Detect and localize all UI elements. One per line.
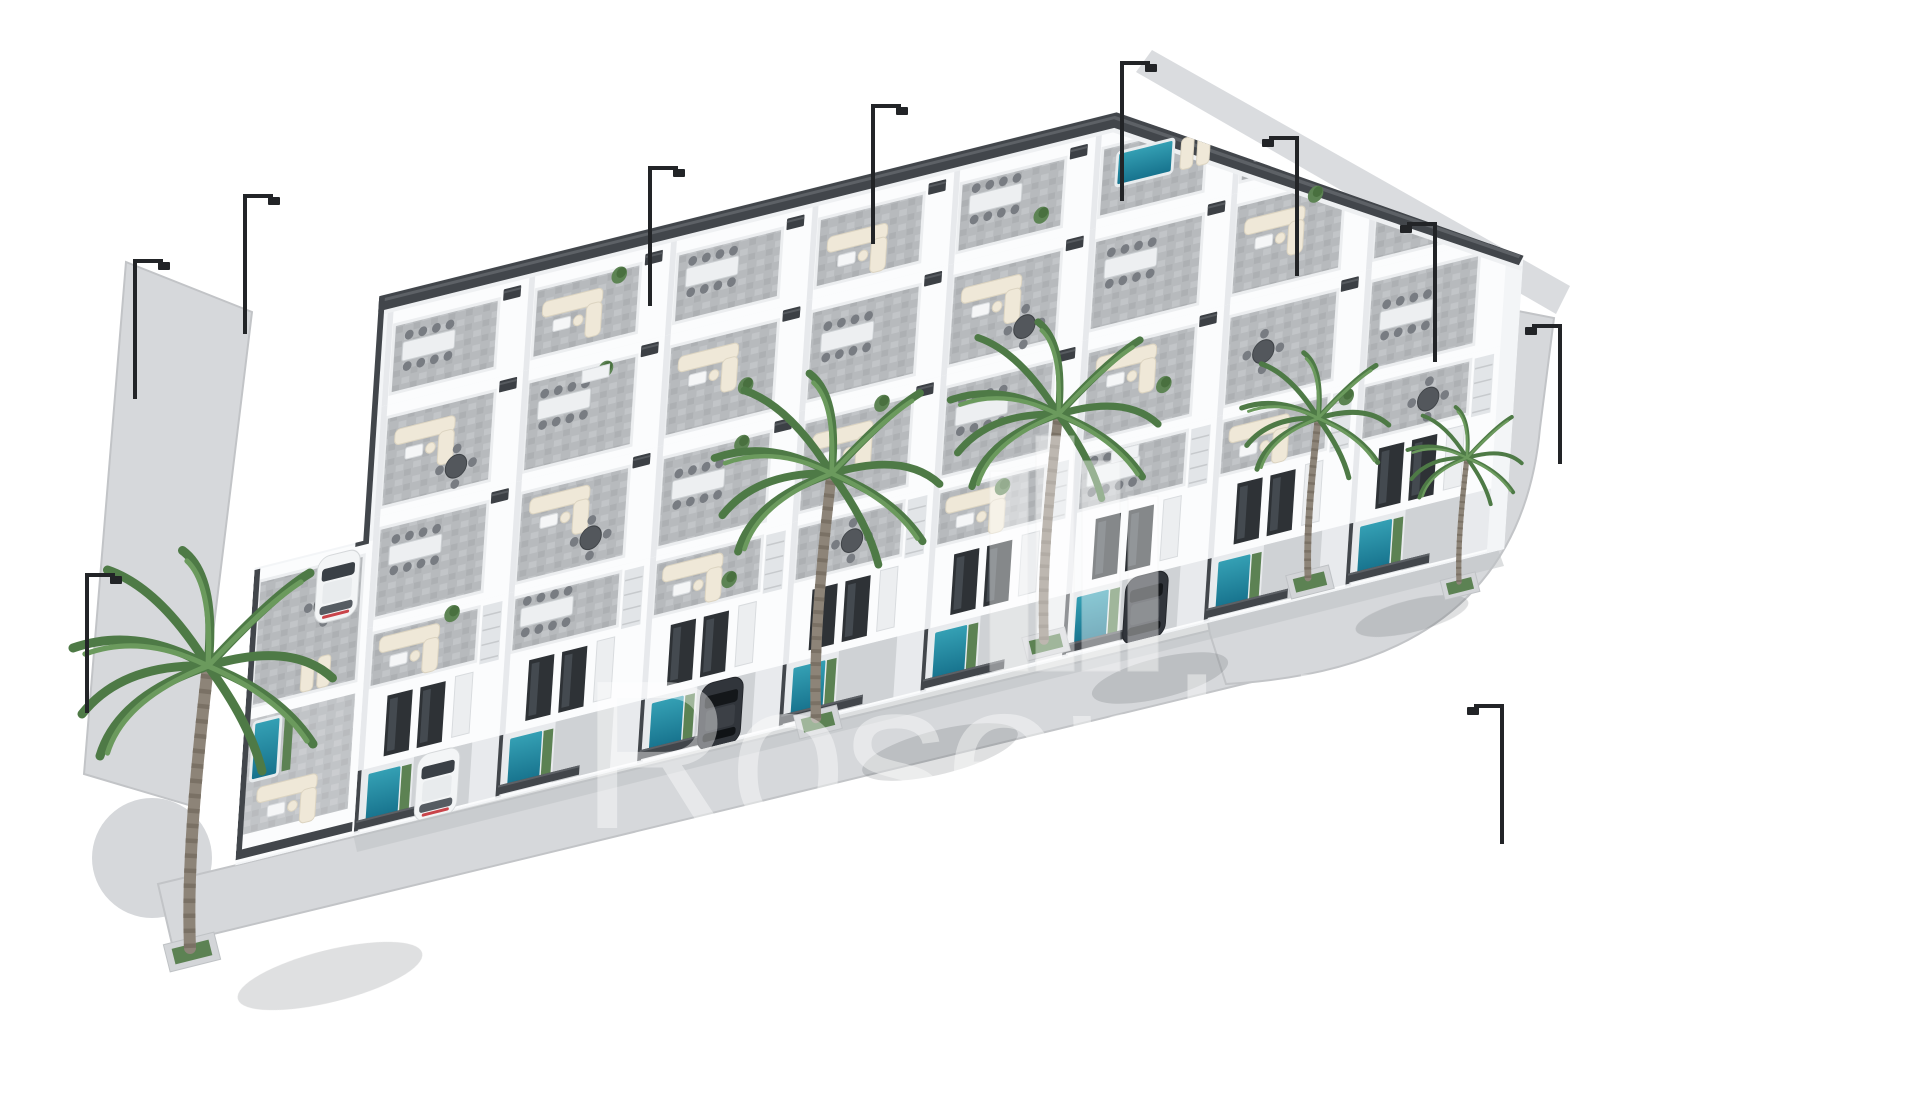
street-lamp bbox=[1467, 704, 1504, 844]
render-scene: Rosenhill bbox=[40, 16, 1920, 1095]
pavement-left bbox=[84, 262, 252, 806]
watermark-text: Rosenhill bbox=[580, 636, 1416, 873]
annex-villa bbox=[235, 541, 373, 864]
render-figure: Rosenhill bbox=[40, 16, 1920, 1095]
